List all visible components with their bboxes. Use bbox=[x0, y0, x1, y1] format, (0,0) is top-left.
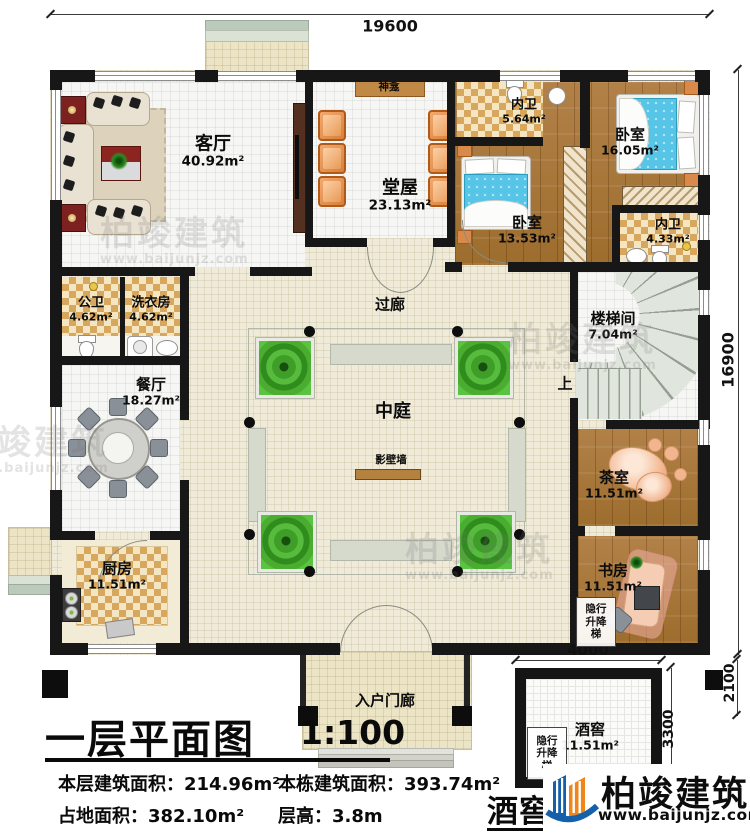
column-dot bbox=[304, 566, 315, 577]
room-label-public-bath: 公卫4.62m² bbox=[69, 297, 112, 324]
window bbox=[51, 90, 61, 200]
wall bbox=[180, 540, 189, 643]
wall bbox=[195, 70, 218, 82]
wall bbox=[570, 272, 578, 362]
courtyard-path-left bbox=[248, 428, 266, 522]
wall bbox=[50, 200, 62, 407]
room-label-tea: 茶室11.51m² bbox=[585, 470, 643, 501]
burner bbox=[65, 592, 78, 605]
brand-block: 柏竣建筑 www.baijunjz.com bbox=[543, 764, 750, 836]
side-table bbox=[58, 96, 86, 124]
dimension-line-right bbox=[738, 70, 739, 655]
column-dot bbox=[514, 417, 525, 428]
wall bbox=[612, 205, 620, 268]
wall bbox=[50, 490, 62, 535]
room-label-shrine: 神龛 bbox=[379, 82, 400, 94]
courtyard-path-bottom bbox=[330, 540, 452, 561]
land-area-text: 占地面积：382.10m² bbox=[58, 802, 244, 828]
dim-tick bbox=[657, 655, 666, 664]
wall bbox=[615, 526, 710, 536]
column-square bbox=[42, 670, 68, 698]
wall bbox=[445, 262, 462, 272]
room-label-bath-right: 内卫4.33m² bbox=[646, 219, 689, 246]
planter-tree bbox=[455, 338, 513, 398]
room-label-living: 客厅40.92m² bbox=[182, 134, 245, 169]
wall bbox=[150, 531, 189, 540]
wall bbox=[180, 365, 189, 420]
window bbox=[218, 71, 296, 81]
dim-top-value: 19600 bbox=[362, 17, 418, 36]
room-label-study: 书房11.51m² bbox=[584, 563, 642, 594]
wall bbox=[250, 267, 312, 276]
wall bbox=[50, 575, 62, 655]
wall bbox=[433, 238, 455, 247]
window bbox=[699, 290, 709, 315]
room-label-hall: 堂屋23.13m² bbox=[369, 178, 432, 213]
bed-pillow bbox=[677, 136, 696, 169]
window bbox=[699, 215, 709, 240]
bed-pillow bbox=[497, 158, 527, 174]
dining-chair bbox=[109, 480, 127, 498]
window bbox=[500, 71, 560, 81]
dim-cellar-right-value: 3300 bbox=[661, 710, 677, 749]
window bbox=[699, 95, 709, 175]
hall-chair bbox=[318, 110, 346, 141]
column-dot bbox=[514, 529, 525, 540]
wall bbox=[120, 277, 125, 356]
column-square bbox=[705, 670, 723, 690]
room-label-entry-porch: 入户门廊 bbox=[355, 693, 415, 710]
bed-pillow bbox=[465, 158, 495, 174]
planter-tree bbox=[256, 338, 314, 398]
lounge-cushion bbox=[674, 468, 687, 481]
stair-run bbox=[578, 368, 642, 419]
column-dot bbox=[304, 326, 315, 337]
dining-chair bbox=[150, 439, 168, 457]
wall bbox=[50, 70, 62, 90]
plan-scale: 1:100 bbox=[300, 713, 405, 752]
wall bbox=[180, 480, 189, 531]
wall bbox=[455, 137, 543, 146]
top-porch-floor bbox=[205, 40, 309, 72]
dim-right-value: 16900 bbox=[719, 332, 738, 388]
courtyard-path-top bbox=[330, 344, 452, 365]
wall bbox=[580, 70, 590, 148]
room-label-cellar: 酒窖11.51m² bbox=[561, 722, 619, 753]
column-dot bbox=[452, 326, 463, 337]
wardrobe bbox=[622, 186, 700, 206]
wall bbox=[156, 643, 340, 655]
plan-title: 一层平面图 bbox=[45, 707, 255, 765]
wall bbox=[560, 70, 628, 82]
planter-tree bbox=[457, 512, 515, 572]
building-area-text: 本栋建筑面积：393.74m² bbox=[278, 770, 500, 796]
sink bbox=[548, 87, 566, 105]
wall bbox=[50, 356, 188, 365]
side-porch-floor bbox=[8, 527, 52, 577]
wall bbox=[447, 70, 455, 238]
toilet bbox=[78, 335, 94, 357]
room-label-dining: 餐厅18.27m² bbox=[122, 377, 180, 408]
label-hidden-elevator-study: 隐行升降梯 bbox=[576, 597, 616, 647]
wardrobe bbox=[563, 146, 587, 266]
table-plant bbox=[110, 152, 128, 170]
room-label-bed-mid: 卧室13.53m² bbox=[498, 215, 556, 246]
dining-table-center bbox=[102, 432, 134, 464]
label-up: 上 bbox=[557, 376, 572, 393]
wall bbox=[698, 570, 710, 655]
window bbox=[699, 420, 709, 445]
column-dot bbox=[452, 566, 463, 577]
hall-chair bbox=[318, 143, 346, 174]
title-underline bbox=[45, 758, 390, 762]
wall bbox=[612, 205, 698, 213]
window bbox=[51, 407, 61, 490]
dining-chair bbox=[68, 439, 86, 457]
wall bbox=[698, 175, 710, 215]
wall bbox=[606, 420, 710, 429]
side-table bbox=[58, 204, 86, 232]
wall bbox=[698, 315, 710, 420]
wall bbox=[570, 526, 585, 536]
wall bbox=[508, 262, 698, 272]
lounge-cushion bbox=[664, 446, 679, 461]
wall bbox=[180, 267, 189, 365]
top-porch-step bbox=[205, 30, 309, 42]
wall bbox=[698, 240, 710, 290]
wall bbox=[698, 70, 710, 95]
room-label-courtyard: 中庭 bbox=[375, 402, 411, 422]
tv-screen bbox=[295, 135, 299, 199]
floor-plan-sheet: 客厅40.92m² 堂屋23.13m² 神龛 内卫5.64m² 卧室16.05m… bbox=[0, 0, 750, 840]
brand-logo-icon bbox=[545, 766, 599, 828]
courtyard-path-right bbox=[508, 428, 526, 522]
entry-porch-wall bbox=[464, 651, 470, 708]
wall bbox=[305, 238, 367, 247]
brand-url: www.baijunjz.com bbox=[598, 806, 750, 824]
wall bbox=[50, 531, 95, 540]
column-dot bbox=[244, 417, 255, 428]
window bbox=[628, 71, 695, 81]
window bbox=[699, 540, 709, 570]
dim-offset-value: 2100 bbox=[722, 664, 738, 703]
side-porch-step bbox=[8, 584, 52, 595]
room-label-bed-right: 卧室16.05m² bbox=[601, 127, 659, 158]
floor-area-text: 本层建筑面积：214.96m² bbox=[58, 770, 280, 796]
hanging-lamp bbox=[89, 282, 98, 291]
floor-height-text: 层高：3.8m bbox=[278, 802, 383, 828]
room-label-stairs: 楼梯间7.04m² bbox=[588, 311, 637, 342]
window bbox=[88, 644, 156, 654]
dimension-line-cellar-top bbox=[515, 660, 662, 661]
screen-wall-bar bbox=[355, 469, 421, 480]
dim-tick bbox=[732, 710, 741, 719]
planter-tree bbox=[258, 512, 316, 572]
lounge-cushion bbox=[648, 438, 662, 452]
washer-door bbox=[133, 340, 147, 354]
porch-column bbox=[452, 706, 472, 726]
room-label-corridor: 过廊 bbox=[375, 297, 405, 314]
bed-pillow bbox=[677, 100, 696, 133]
burner bbox=[65, 606, 78, 619]
dimension-line-top bbox=[50, 14, 710, 15]
column-dot bbox=[244, 529, 255, 540]
wall bbox=[305, 70, 313, 238]
hall-chair bbox=[318, 176, 346, 207]
wall bbox=[50, 267, 195, 276]
dim-tick bbox=[705, 9, 714, 18]
room-label-kitchen: 厨房11.51m² bbox=[88, 561, 146, 592]
sink bbox=[156, 340, 178, 356]
label-screen-wall: 影壁墙 bbox=[375, 455, 407, 467]
room-label-bath-top: 内卫5.64m² bbox=[502, 99, 545, 126]
window bbox=[95, 71, 195, 81]
entry-porch-wall bbox=[300, 651, 306, 708]
room-label-laundry: 洗衣房4.62m² bbox=[129, 297, 172, 324]
